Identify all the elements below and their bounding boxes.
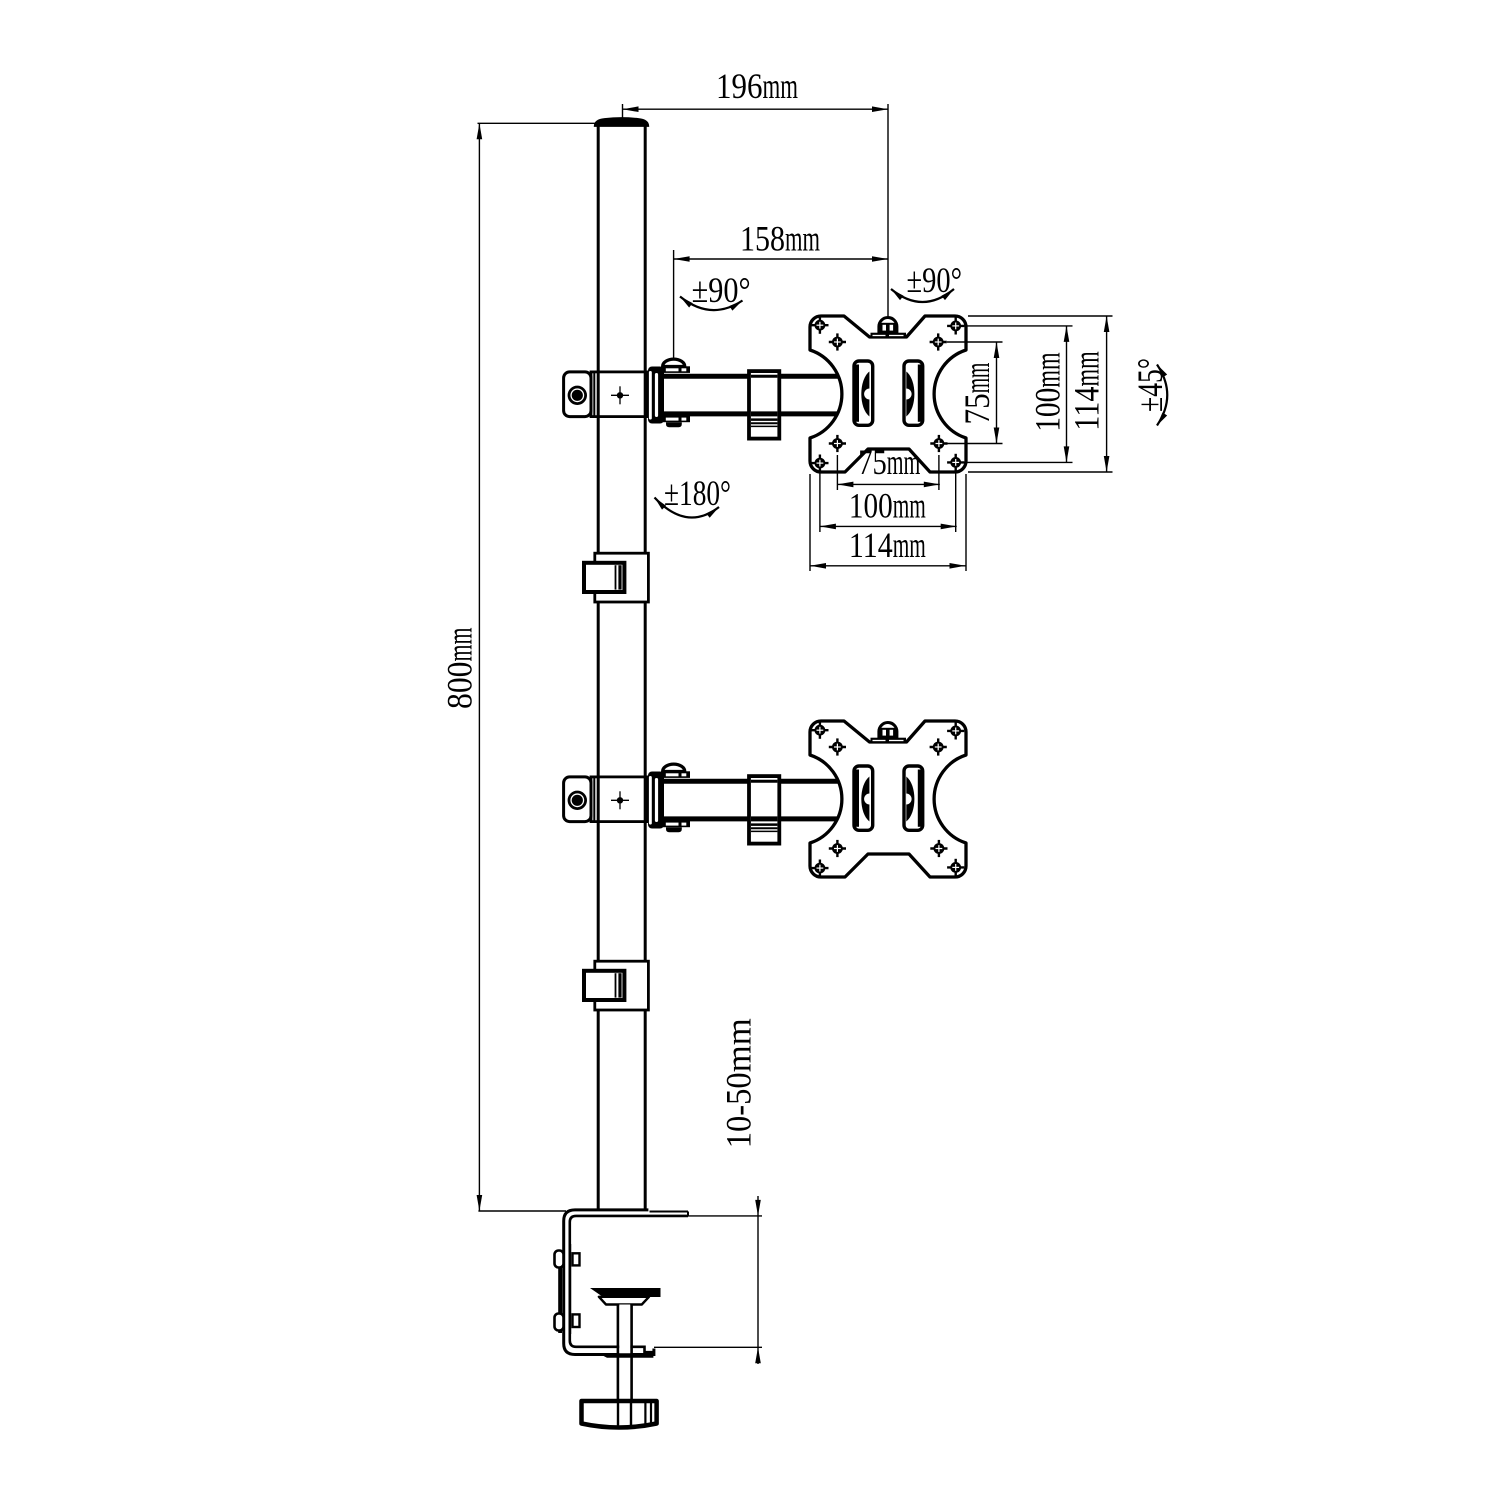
- svg-text:10-50mm: 10-50mm: [718, 1018, 758, 1148]
- svg-text:75mm: 75mm: [957, 362, 997, 424]
- svg-text:114mm: 114mm: [1067, 351, 1107, 431]
- svg-text:196mm: 196mm: [716, 66, 798, 106]
- svg-text:75mm: 75mm: [858, 442, 920, 482]
- svg-text:100mm: 100mm: [1027, 352, 1067, 432]
- svg-text:±180°: ±180°: [664, 473, 731, 513]
- svg-text:800mm: 800mm: [440, 627, 480, 709]
- svg-text:±45°: ±45°: [1130, 358, 1170, 412]
- svg-text:158mm: 158mm: [740, 219, 820, 259]
- svg-text:±90°: ±90°: [907, 260, 963, 300]
- svg-text:±90°: ±90°: [692, 270, 751, 310]
- svg-text:114mm: 114mm: [849, 525, 926, 565]
- svg-text:100mm: 100mm: [849, 486, 926, 526]
